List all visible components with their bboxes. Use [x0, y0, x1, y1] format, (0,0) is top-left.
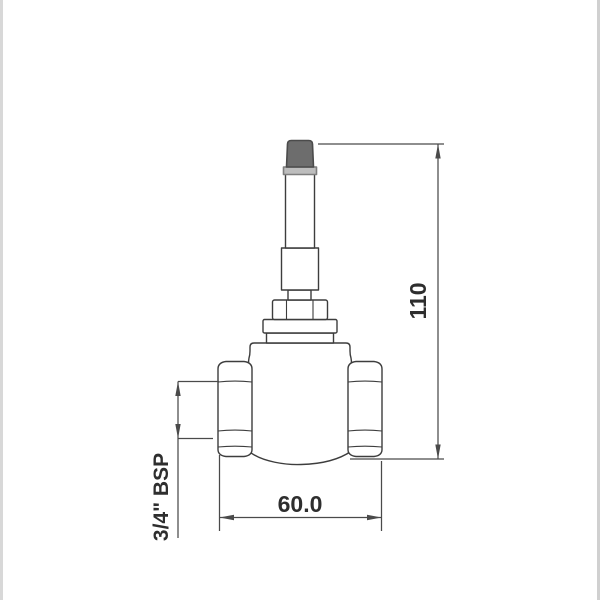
bonnet-flange — [263, 320, 337, 334]
width-dimension: 60.0 — [220, 455, 382, 531]
spindle-group — [282, 141, 319, 301]
left-nut-outline — [218, 362, 252, 457]
valve-body — [249, 343, 352, 465]
width-dim-label: 60.0 — [278, 491, 323, 517]
valve-body-group — [249, 343, 352, 465]
spindle-cap — [287, 141, 314, 168]
arrowhead-down — [175, 424, 180, 439]
bonnet-hex-nut — [273, 300, 328, 320]
thread-dimension: 3/4" BSP — [150, 382, 219, 542]
valve-spindle — [286, 174, 315, 248]
right-nut-outline — [348, 362, 382, 457]
arrowhead-left — [220, 515, 235, 520]
arrowhead-right — [367, 515, 382, 520]
valve-technical-drawing: 110 60.0 3/4" BSP — [0, 0, 600, 600]
gland-nut — [282, 248, 319, 290]
right-connection-nut — [348, 362, 382, 457]
spindle-step — [288, 290, 311, 300]
page-edge-strip-left — [0, 0, 3, 600]
bonnet-group — [263, 300, 337, 343]
height-dim-label: 110 — [405, 282, 431, 319]
arrowhead-up — [175, 382, 180, 397]
left-connection-nut — [218, 362, 252, 457]
arrowhead-up — [435, 144, 440, 159]
thread-dim-label: 3/4" BSP — [150, 453, 173, 541]
spindle-cap-base — [284, 167, 317, 175]
bonnet-skirt — [267, 333, 334, 343]
arrowhead-down — [435, 445, 440, 460]
